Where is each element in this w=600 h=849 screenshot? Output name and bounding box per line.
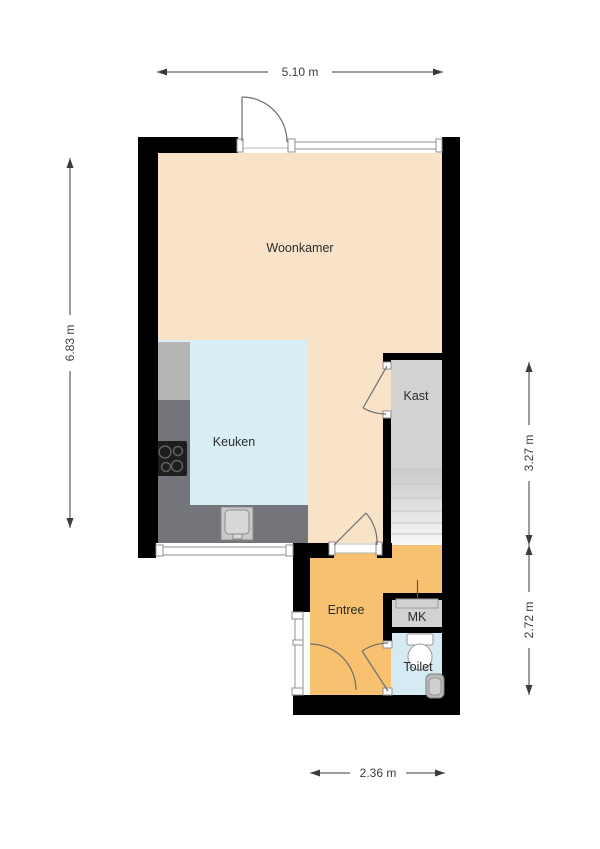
wall-segment [383, 593, 392, 641]
stove [156, 441, 187, 476]
toilet-label: Toilet [403, 660, 433, 674]
wall-segment [138, 137, 238, 153]
entry-door [242, 97, 287, 142]
door-frame [383, 688, 392, 695]
dimension-top-label: 5.10 m [282, 65, 319, 79]
living-room-window [293, 142, 436, 149]
door-frame [383, 641, 392, 648]
dimension-top: 5.10 m [157, 63, 443, 80]
stairs [391, 468, 442, 545]
kast-floor [391, 360, 442, 468]
dimension-left: 6.83 m [61, 158, 79, 528]
wall-segment [391, 627, 442, 633]
mk-label: MK [408, 610, 427, 624]
wall-segment [442, 137, 460, 715]
keuken-label: Keuken [213, 435, 255, 449]
door-frame [383, 362, 391, 369]
window-frame [292, 688, 303, 695]
entree-label: Entree [328, 603, 365, 617]
window-frame [286, 545, 293, 556]
floor-plan: Woonkamer Keuken Kast Entree MK Toilet 5… [0, 0, 600, 849]
wall-segment [383, 416, 391, 545]
dimension-right-lower: 2.72 m [520, 545, 538, 695]
window-frame [292, 612, 303, 619]
wall-segment [138, 137, 158, 558]
entree-front-door-glazing [295, 619, 303, 689]
dimension-bottom-label: 2.36 m [360, 766, 397, 780]
wall-segment [383, 353, 442, 360]
dimension-right-upper: 3.27 m [520, 362, 538, 545]
kitchen-sink [221, 507, 253, 540]
dimension-right-lower-label: 2.72 m [522, 602, 536, 639]
toilet-sink [426, 674, 444, 698]
window-frame [156, 545, 163, 556]
mk-door-panel [396, 599, 438, 608]
window-frame [293, 640, 303, 645]
kast-label: Kast [403, 389, 429, 403]
dimension-bottom: 2.36 m [310, 764, 445, 781]
wall-segment [293, 543, 310, 612]
door-frame [329, 542, 335, 555]
woonkamer-label: Woonkamer [266, 241, 333, 255]
door-threshold [334, 544, 377, 553]
window-frame [436, 139, 442, 152]
window-frame [288, 139, 295, 152]
dimension-right-upper-label: 3.27 m [522, 435, 536, 472]
dimension-left-label: 6.83 m [63, 325, 77, 362]
kitchen-tall-cabinet [156, 342, 190, 400]
kitchen-window [162, 547, 286, 555]
